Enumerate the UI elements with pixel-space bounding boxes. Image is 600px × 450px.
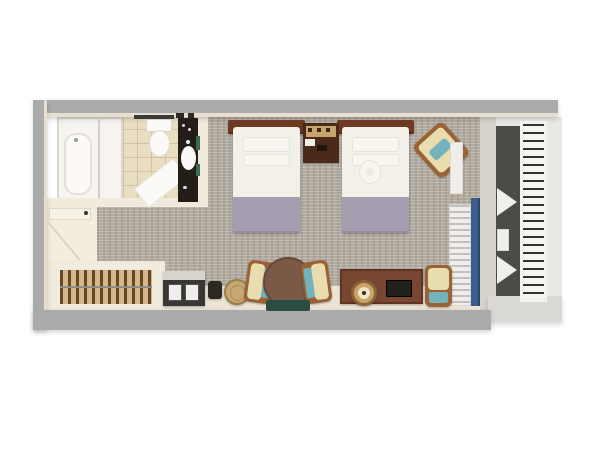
toilet-bowl — [149, 130, 170, 157]
desk-chair-cushion — [428, 268, 449, 290]
minibar — [163, 271, 205, 306]
bathtub — [64, 133, 92, 195]
wall-shelf — [450, 142, 463, 194]
vanity-toiletry-3 — [183, 186, 187, 189]
tv — [386, 280, 412, 297]
floor-mat — [266, 300, 310, 311]
outer-wall-top — [45, 100, 558, 117]
closet-hanger-rod — [60, 286, 152, 288]
vanity-faucet-dot — [186, 140, 190, 144]
bed2-foot-runner — [342, 197, 409, 233]
balcony-side-table — [497, 229, 509, 251]
nightstand-handle — [317, 145, 327, 151]
desk-chair — [425, 265, 452, 307]
nightstand-item-2 — [317, 128, 321, 132]
bed1-foot-runner — [233, 197, 300, 233]
minibar-door-right — [185, 284, 199, 301]
entry-door-handle — [84, 211, 88, 215]
shower-faucet-dot — [74, 138, 78, 142]
outer-wall-left — [33, 100, 47, 330]
curtain — [471, 198, 480, 306]
vanity-toiletry-1 — [182, 124, 185, 127]
bed1-pillow-1 — [243, 137, 290, 152]
bed1-pillow-2 — [243, 154, 290, 166]
louver-screen — [520, 121, 547, 302]
bathroom-divider-wall — [198, 117, 208, 206]
bed2-pillow-1 — [352, 137, 399, 152]
table-lamp-finial — [362, 291, 366, 295]
vanity-toiletry-2 — [188, 128, 191, 131]
kettle — [208, 281, 222, 299]
floor-plan-render — [0, 0, 600, 450]
desk-chair-teal-seat — [429, 292, 448, 303]
bed2-towel-art-center — [366, 168, 374, 176]
side-chair-right — [300, 259, 333, 304]
window-wall — [480, 117, 496, 310]
minibar-top — [163, 271, 205, 280]
towel-bar — [134, 115, 174, 119]
vanity-towel-green-2 — [196, 164, 200, 176]
outer-wall-bottom — [33, 310, 491, 330]
nightstand-notepad — [305, 139, 315, 146]
table-lamp — [351, 280, 377, 306]
nightstand-item-1 — [308, 128, 312, 132]
shower-glass-divider — [98, 119, 100, 198]
balcony-right-wall — [546, 117, 562, 302]
vanity-towel-green-1 — [196, 136, 200, 150]
minibar-door-left — [168, 284, 182, 301]
vanity-sink — [181, 146, 196, 170]
radiator — [449, 204, 471, 306]
nightstand-item-3 — [326, 128, 330, 132]
